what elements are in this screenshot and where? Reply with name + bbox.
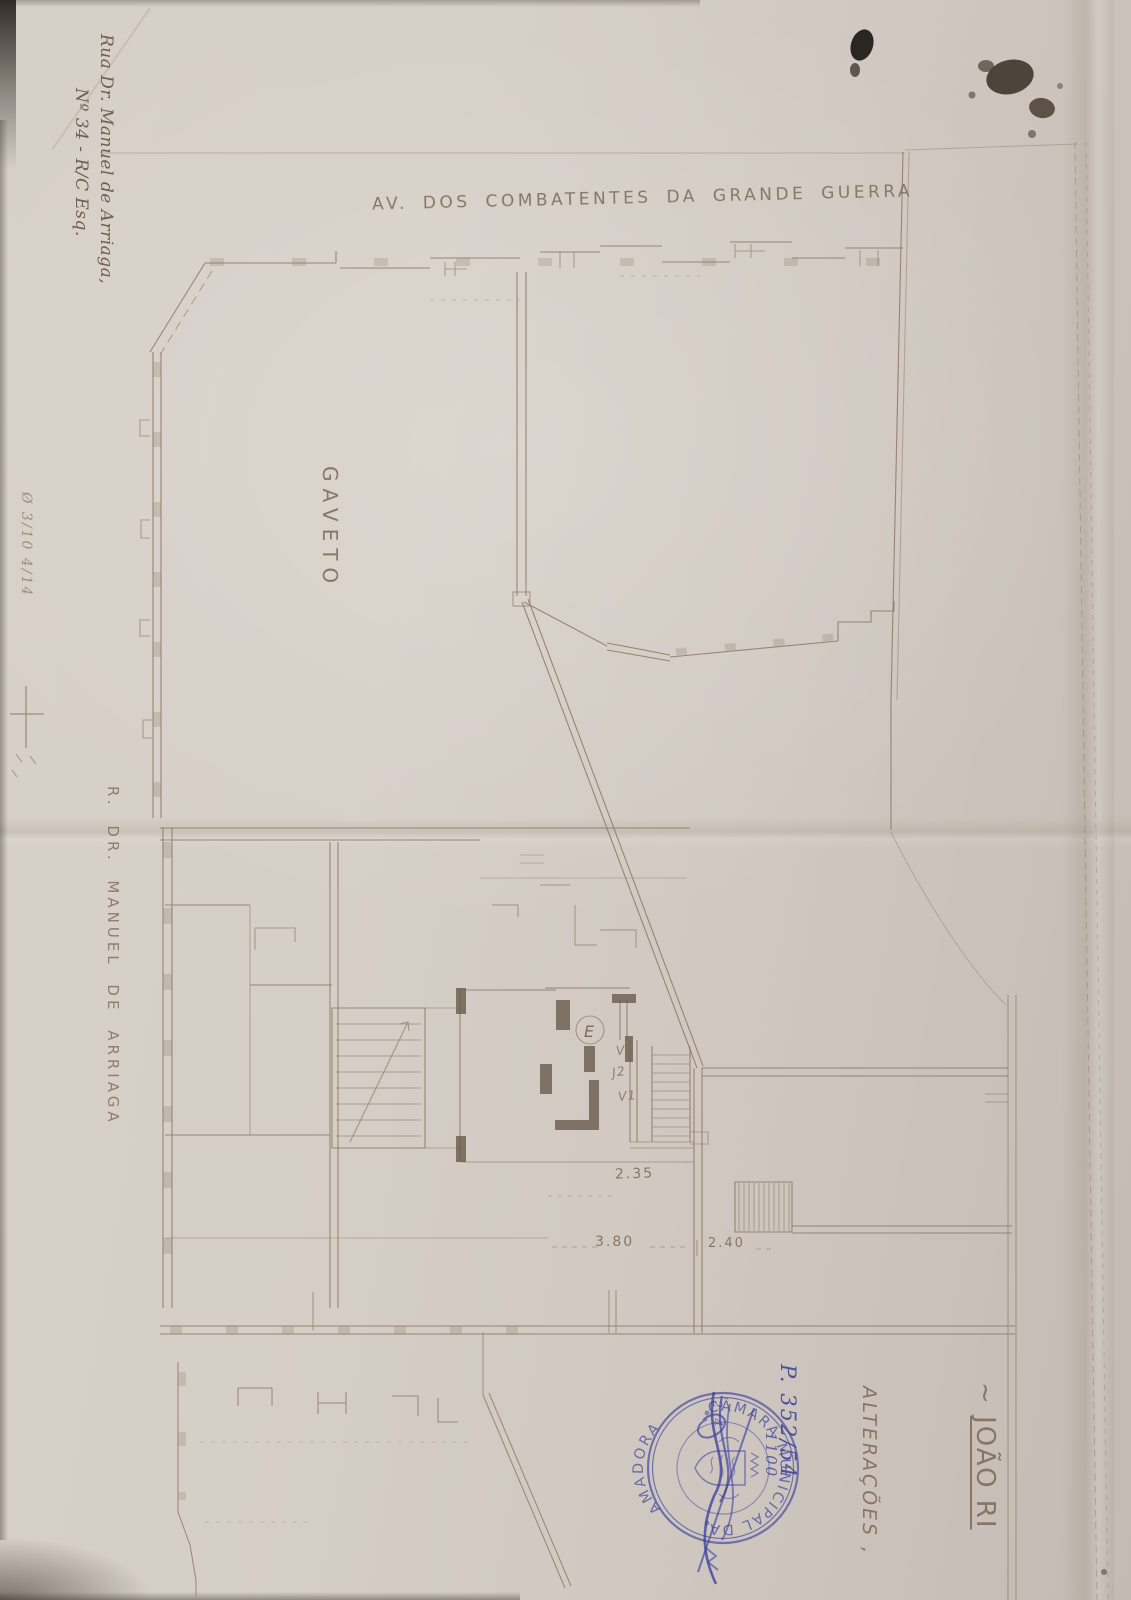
annex-plan-walls: [178, 1362, 571, 1596]
address-line-2: Nº 34 - R/C Esq.: [68, 34, 93, 284]
opening-mark-j2: J2: [611, 1063, 627, 1080]
room-letter-e: E: [584, 1022, 595, 1041]
lower-plan-walls: [160, 828, 1016, 1600]
drawing-title: ~ JOÃO RI: [970, 1382, 1000, 1530]
scanned-floor-plan: E CÂMARA MUNICIPAL DA: [0, 0, 1131, 1600]
margin-cross-mark: [10, 686, 44, 777]
street-label-rua-arriaga: R. DR. MANUEL DE ARRIAGA: [104, 786, 122, 1126]
address-line-1: Rua Dr. Manuel de Arriaga,: [93, 34, 118, 284]
ink-stains: [847, 26, 1107, 1575]
address-annotation: Rua Dr. Manuel de Arriaga, Nº 34 - R/C E…: [68, 34, 118, 284]
stamp-handwritten-note-a: 2 4: [709, 1400, 724, 1430]
opening-mark-v1-b: V1: [617, 1087, 637, 1104]
opening-mark-v1-a: V1: [615, 1041, 635, 1058]
sheet-border-lines: [52, 8, 1108, 1600]
margin-pencil-note: Ø 3/10 4/14: [18, 492, 34, 597]
dimension-2-35: 2.35: [615, 1165, 655, 1182]
corner-label-gaveto: GAVETO: [318, 466, 342, 590]
title-name: JOÃO RI: [970, 1416, 1000, 1529]
subject-label-alteracoes: ALTERAÇÕES ,: [858, 1384, 880, 1558]
filled-wall-cores: [456, 988, 636, 1162]
stamp-handwritten-note-b: 1100: [762, 1432, 780, 1478]
plan-linework: E CÂMARA MUNICIPAL DA: [0, 0, 1131, 1600]
dimension-3-80: 3.80: [595, 1234, 634, 1250]
title-tilde: ~: [970, 1382, 1000, 1416]
signature-scribble: [698, 1392, 754, 1584]
mid-plan-details: [480, 855, 686, 948]
dimension-2-40: 2.40: [708, 1236, 745, 1251]
